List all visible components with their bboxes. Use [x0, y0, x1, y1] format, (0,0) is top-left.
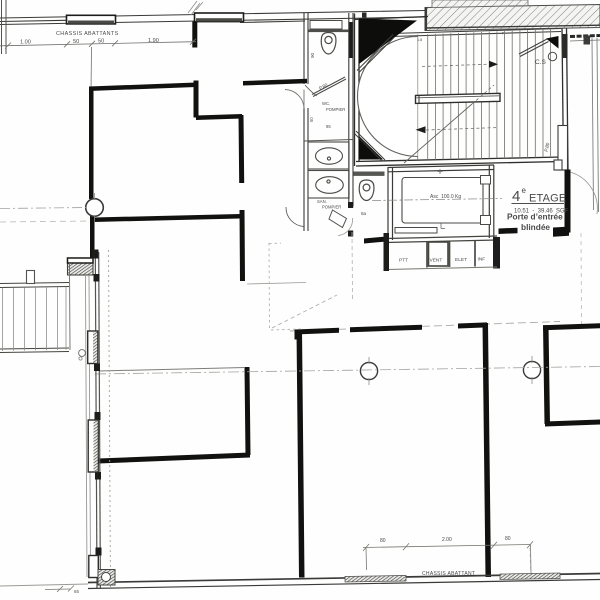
svg-text:95: 95 — [326, 124, 331, 129]
svg-text:e: e — [522, 186, 527, 195]
svg-text:VENT: VENT — [430, 258, 443, 264]
svg-text:POMPIER: POMPIER — [326, 107, 345, 112]
svg-text:blindée: blindée — [521, 222, 550, 232]
svg-text:50: 50 — [73, 39, 79, 45]
svg-text:ETAGE: ETAGE — [529, 193, 566, 205]
svg-text:CHASSIS ABATTANT: CHASSIS ABATTANT — [422, 571, 475, 577]
svg-text:SAN.: SAN. — [317, 199, 327, 204]
svg-text:50: 50 — [98, 39, 104, 45]
svg-text:ELET: ELET — [455, 257, 467, 263]
svg-text:INF: INF — [478, 257, 486, 263]
svg-text:2.00: 2.00 — [442, 537, 452, 543]
svg-text:Porte d’entrée: Porte d’entrée — [507, 212, 563, 222]
svg-text:1.00: 1.00 — [20, 40, 31, 46]
svg-text:4: 4 — [512, 188, 520, 205]
svg-text:80: 80 — [505, 536, 511, 542]
svg-text:1.8: 1.8 — [417, 38, 422, 42]
svg-text:POMPIER: POMPIER — [322, 205, 341, 210]
svg-text:80: 80 — [380, 538, 386, 544]
svg-text:1.90: 1.90 — [148, 38, 159, 44]
svg-text:50: 50 — [309, 117, 314, 122]
svg-text:C.S: C.S — [535, 59, 547, 66]
svg-text:8a: 8a — [361, 211, 367, 216]
svg-text:PTT: PTT — [399, 258, 408, 264]
svg-text:CHASSIS ABATTANTS: CHASSIS ABATTANTS — [56, 31, 119, 37]
svg-text:WC.: WC. — [322, 101, 330, 106]
svg-text:90: 90 — [310, 52, 315, 58]
svg-text:65: 65 — [74, 589, 79, 594]
